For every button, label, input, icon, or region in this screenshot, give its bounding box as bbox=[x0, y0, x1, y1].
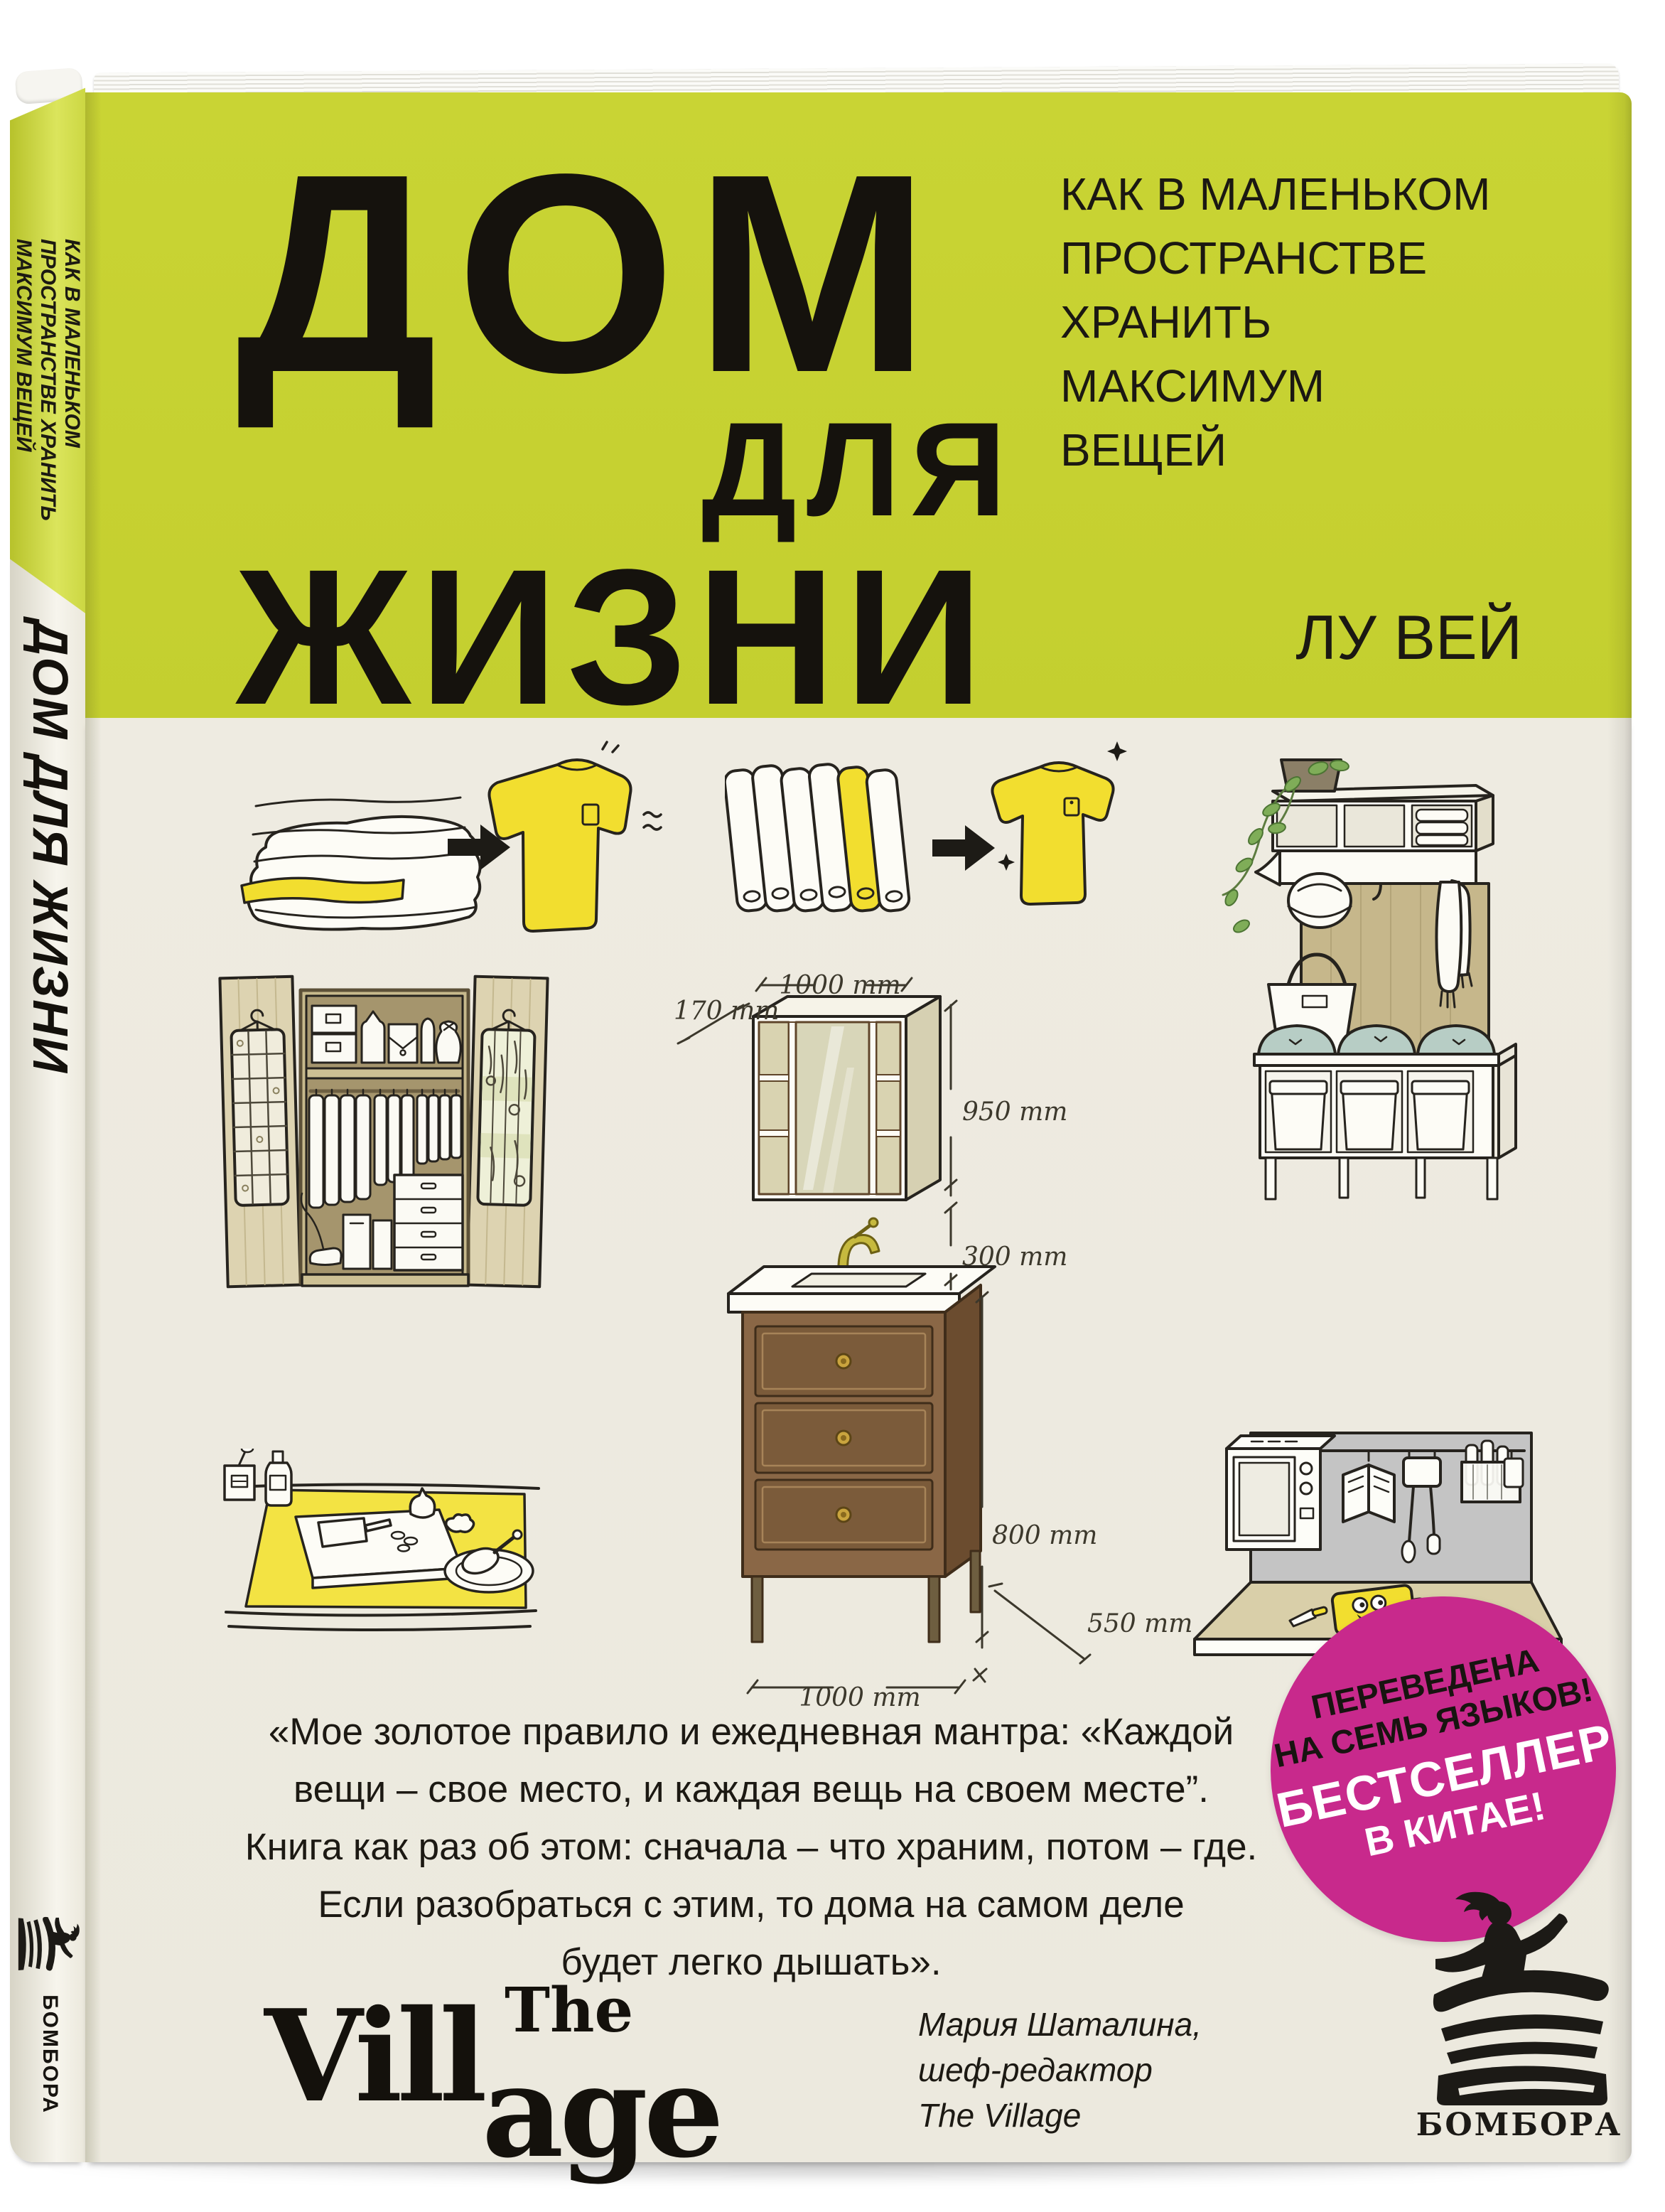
narrow-bag bbox=[421, 1019, 434, 1063]
title-line-dom: ДОМ bbox=[236, 132, 949, 415]
author-name: ЛУ ВЕЙ bbox=[1060, 601, 1522, 674]
village-logo-age: age bbox=[482, 2037, 720, 2186]
hanging-pocket-organizer bbox=[231, 1029, 288, 1206]
dim-label-950: 950 mm bbox=[962, 1097, 1067, 1127]
spine-publisher-text: БОМБОРА bbox=[38, 1994, 62, 2114]
subtitle-line: ВЕЩЕЙ bbox=[1060, 418, 1522, 482]
quote-line: вещи – свое место, и каждая вещь на свое… bbox=[229, 1761, 1273, 1818]
wrinkled-shirt bbox=[489, 760, 630, 931]
spine-hinge-shadow bbox=[85, 92, 107, 2162]
storage-bench bbox=[1254, 1026, 1516, 1199]
cutting-board bbox=[296, 1510, 462, 1578]
spine-subtitle: КАК В МАЛЕНЬКОМ ПРОСТРАНСТВЕ ХРАНИТЬ МАК… bbox=[13, 239, 84, 637]
arrow-right-icon bbox=[932, 825, 995, 871]
illustration-bathroom-vanity-diagram: 170 mm 1000 mm 950 mm 300 mm 800 mm 550 … bbox=[661, 961, 1208, 1714]
baskets bbox=[1270, 1081, 1469, 1149]
coat bbox=[375, 1095, 387, 1185]
subtitle-line: ХРАНИТЬ bbox=[1060, 290, 1522, 354]
quote-line: «Мое золотое правило и ежедневная мантра… bbox=[229, 1703, 1273, 1761]
yellow-cloth-sticking-out bbox=[242, 878, 404, 903]
shirt bbox=[417, 1095, 427, 1164]
salt-box bbox=[225, 1449, 254, 1500]
storage-box bbox=[312, 1034, 356, 1063]
neat-shirt bbox=[992, 763, 1113, 904]
quote-line: Книга как раз об этом: сначала – что хра… bbox=[229, 1818, 1273, 1876]
spine-subtitle-line: МАКСИМУМ ВЕЩЕЙ bbox=[11, 239, 36, 637]
subtitle-line: ПРОСТРАНСТВЕ bbox=[1060, 226, 1522, 290]
endorser-name: Мария Шаталина, bbox=[918, 2002, 1202, 2047]
title-line-zhizni: ЖИЗНИ bbox=[236, 540, 992, 734]
village-logo-the: The bbox=[505, 1975, 633, 2046]
spine-title: ДОМ ДЛЯ ЖИЗНИ bbox=[12, 620, 86, 1260]
storage-box bbox=[312, 1006, 356, 1033]
village-logo-vill: Vill bbox=[264, 1982, 482, 2130]
cover-subtitle: КАК В МАЛЕНЬКОМ ПРОСТРАНСТВЕ ХРАНИТЬ МАК… bbox=[1060, 162, 1522, 482]
quote-line: Если разобраться с этим, то дома на само… bbox=[229, 1876, 1273, 1933]
hat bbox=[1288, 874, 1351, 928]
the-village-logo: Vill The age bbox=[264, 1977, 819, 2212]
spine-subtitle-line: КАК В МАЛЕНЬКОМ bbox=[60, 239, 84, 637]
endorser-role: шеф-редактор bbox=[918, 2047, 1202, 2093]
microwave-oven bbox=[1227, 1436, 1335, 1550]
illustration-cutting-board-scene bbox=[205, 1449, 617, 1683]
endorser-credit: Мария Шаталина, шеф-редактор The Village bbox=[918, 2002, 1202, 2138]
dim-label-550: 550 mm bbox=[1087, 1609, 1192, 1638]
illustration-hallway-bench bbox=[1173, 750, 1634, 1326]
iron bbox=[310, 1248, 341, 1265]
dim-label-300: 300 mm bbox=[962, 1242, 1067, 1272]
bombora-surfer-icon bbox=[1433, 1892, 1609, 2105]
spine-bombora-logo: БОМБОРА bbox=[17, 1911, 82, 2145]
garment-cover bbox=[309, 1095, 323, 1208]
endorser-org: The Village bbox=[918, 2093, 1202, 2138]
bombora-logo-text: БОМБОРА bbox=[1416, 2107, 1622, 2143]
illustration-messy-stack-to-wrinkled-shirt bbox=[235, 739, 675, 967]
illustration-file-folding-to-neat-shirt bbox=[725, 736, 1137, 970]
spine-subtitle-line: ПРОСТРАНСТВЕ ХРАНИТЬ bbox=[36, 239, 60, 637]
bombora-publisher-logo: БОМБОРА bbox=[1413, 1882, 1626, 2147]
illustration-open-wardrobe bbox=[217, 970, 551, 1304]
shake-marks-icon bbox=[603, 742, 618, 752]
oil-bottle bbox=[266, 1451, 291, 1505]
dim-label-800: 800 mm bbox=[992, 1521, 1097, 1550]
envelope-bag bbox=[389, 1024, 417, 1063]
subtitle-line: КАК В МАЛЕНЬКОМ bbox=[1060, 162, 1522, 226]
spice-jar bbox=[1504, 1459, 1523, 1487]
cleaver bbox=[318, 1518, 367, 1547]
folded-towels bbox=[1416, 810, 1467, 845]
dim-label-170: 170 mm bbox=[674, 997, 779, 1026]
bombora-surfer-icon-spine bbox=[17, 1911, 82, 1976]
title-line-dlya: ДЛЯ bbox=[235, 402, 1016, 536]
review-quote: «Мое золотое правило и ежедневная мантра… bbox=[229, 1703, 1273, 1991]
subtitle-line: МАКСИМУМ bbox=[1060, 354, 1522, 418]
dim-label-1000-top: 1000 mm bbox=[779, 971, 900, 1000]
